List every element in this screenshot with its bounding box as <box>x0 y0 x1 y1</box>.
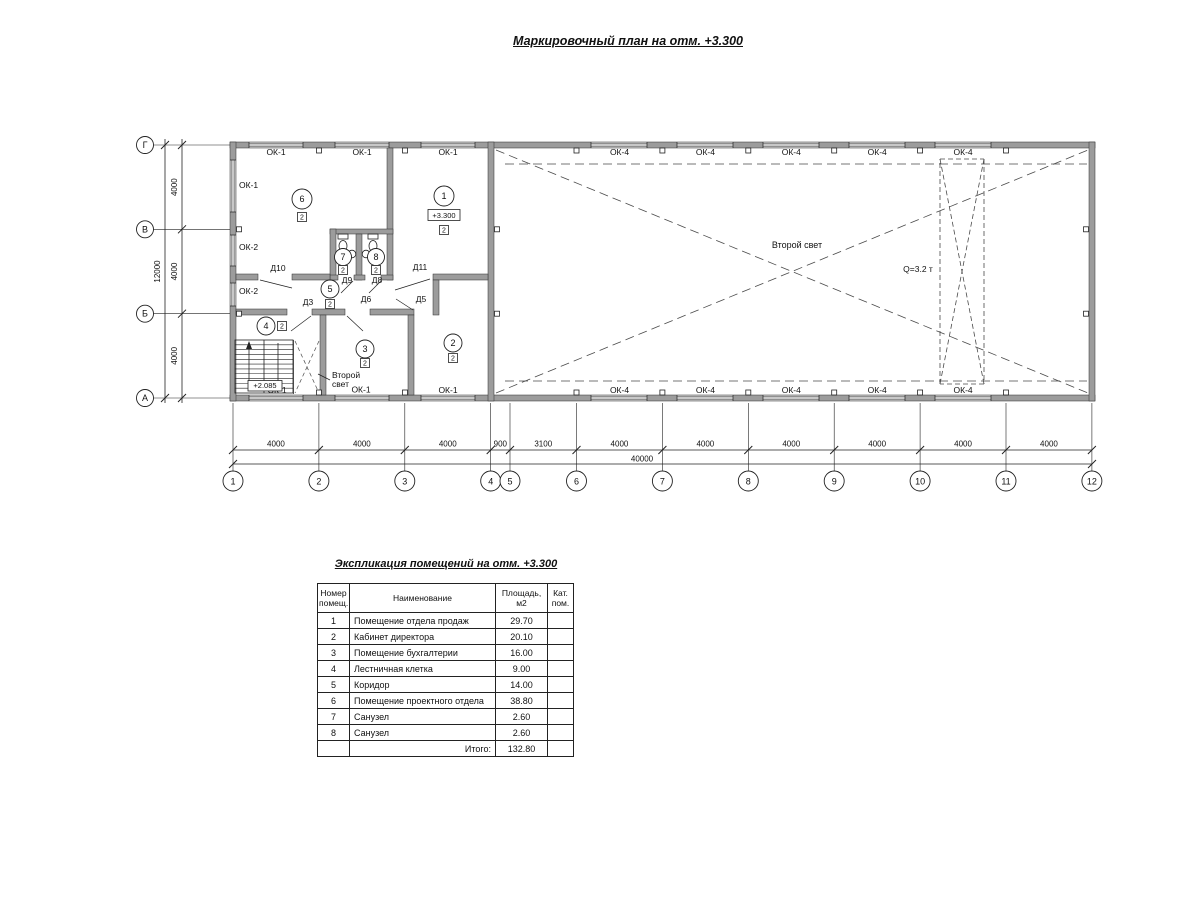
window-label: ОК-2 <box>239 286 258 296</box>
column-number: 10 <box>915 477 925 487</box>
window-label: ОК-4 <box>610 385 629 395</box>
window-opening <box>591 396 647 401</box>
cell-area: 14.00 <box>496 677 548 693</box>
row-letter: Г <box>143 140 148 150</box>
dimension-text: 4000 <box>170 346 179 364</box>
door-swing <box>396 299 413 310</box>
window-label: ОК-4 <box>782 385 801 395</box>
window-opening <box>421 396 475 401</box>
door-label: Д3 <box>303 297 314 307</box>
wall-tick <box>746 148 751 153</box>
header-room-number: Номер помещ. <box>318 584 350 613</box>
dimension-text: 4000 <box>170 178 179 196</box>
floor-plan-drawing: Д10Д9Д8Д11Д3Д6Д5ОК-1ОК-1ОК-1ОК-4ОК-4ОК-4… <box>0 0 1200 545</box>
window-opening <box>335 396 389 401</box>
category-value: 2 <box>374 268 378 275</box>
row-letter: Б <box>142 309 148 319</box>
wall-segment <box>356 234 362 280</box>
wall-segment <box>236 309 287 315</box>
window-label: ОК-1 <box>438 385 457 395</box>
door-swing <box>291 316 311 331</box>
wall-tick <box>317 390 322 395</box>
wall-tick <box>1084 311 1089 316</box>
cell-name: Санузел <box>350 709 496 725</box>
cell-number: 3 <box>318 645 350 661</box>
wall-segment <box>408 315 414 395</box>
dimension-text: 4000 <box>170 262 179 280</box>
wall-tick <box>1084 227 1089 232</box>
second-light-label: Второй свет <box>772 240 822 250</box>
wall-tick <box>746 390 751 395</box>
cell-category <box>548 661 574 677</box>
cell-name: Помещение проектного отдела <box>350 693 496 709</box>
window-label: ОК-4 <box>954 147 973 157</box>
window-label: ОК-4 <box>954 385 973 395</box>
cell-name: Лестничная клетка <box>350 661 496 677</box>
cell-area: 29.70 <box>496 613 548 629</box>
wall-segment <box>354 275 365 280</box>
cell-category <box>548 613 574 629</box>
window-opening <box>231 235 236 266</box>
window-opening <box>849 396 905 401</box>
wall-segment <box>312 309 345 315</box>
cell-category <box>548 725 574 741</box>
wall-tick <box>317 148 322 153</box>
column-number: 3 <box>402 477 407 487</box>
room-number: 2 <box>450 338 455 348</box>
category-value: 2 <box>300 215 304 222</box>
column-number: 9 <box>832 477 837 487</box>
column-number: 5 <box>507 477 512 487</box>
table-row: 6Помещение проектного отдела38.80 <box>318 693 574 709</box>
room-number: 1 <box>441 191 446 201</box>
dimension-total-text: 12000 <box>153 260 162 283</box>
drawing-sheet: Маркировочный план на отм. +3.300 Д10Д9Д… <box>0 0 1200 900</box>
cell-category <box>548 709 574 725</box>
toilet-tank <box>338 234 348 239</box>
total-value: 132.80 <box>496 741 548 757</box>
window-opening <box>231 160 236 212</box>
cell-category <box>548 677 574 693</box>
column-number: 2 <box>316 477 321 487</box>
category-value: 2 <box>363 361 367 368</box>
table-row: 4Лестничная клетка9.00 <box>318 661 574 677</box>
cell-area: 20.10 <box>496 629 548 645</box>
dimension-text: 4000 <box>353 440 371 449</box>
wall-tick <box>918 148 923 153</box>
cell-number: 7 <box>318 709 350 725</box>
dimension-text: 4000 <box>1040 440 1058 449</box>
cell-area: 2.60 <box>496 709 548 725</box>
window-label: ОК-4 <box>696 385 715 395</box>
wall-segment <box>330 229 393 234</box>
door-swing <box>260 280 292 288</box>
dimension-text: 4000 <box>696 440 714 449</box>
cell-number: 6 <box>318 693 350 709</box>
window-label: ОК-1 <box>239 180 258 190</box>
cell-number: 1 <box>318 613 350 629</box>
cell-category <box>548 629 574 645</box>
header-room-area: Площадь, м2 <box>496 584 548 613</box>
wall-segment <box>387 148 393 280</box>
dimension-total-text: 40000 <box>631 455 654 464</box>
wall-segment <box>320 315 326 395</box>
explication-section: Экспликация помещений на отм. +3.300 Ном… <box>317 558 575 757</box>
table-row: 8Санузел2.60 <box>318 725 574 741</box>
wall-tick <box>1004 148 1009 153</box>
category-value: 2 <box>328 302 332 309</box>
cell-area: 16.00 <box>496 645 548 661</box>
dimension-text: 4000 <box>782 440 800 449</box>
window-label: ОК-4 <box>696 147 715 157</box>
cell-category <box>548 645 574 661</box>
cell-area: 2.60 <box>496 725 548 741</box>
toilet-tank <box>368 234 378 239</box>
column-number: 4 <box>488 477 493 487</box>
wall-tick <box>574 390 579 395</box>
table-total-row: Итого:132.80 <box>318 741 574 757</box>
window-opening <box>231 283 236 306</box>
room-number: 7 <box>340 252 345 262</box>
table-row: 7Санузел2.60 <box>318 709 574 725</box>
wall-tick <box>403 390 408 395</box>
window-opening <box>935 396 991 401</box>
column-number: 11 <box>1001 477 1010 487</box>
explication-title: Экспликация помещений на отм. +3.300 <box>317 558 575 570</box>
column-number: 8 <box>746 477 751 487</box>
door-label: Д5 <box>416 294 427 304</box>
header-room-category: Кат. пом. <box>548 584 574 613</box>
wall-tick <box>403 148 408 153</box>
cell-number: 2 <box>318 629 350 645</box>
table-header-row: Номер помещ. Наименование Площадь, м2 Ка… <box>318 584 574 613</box>
door-label: Д11 <box>413 262 428 272</box>
door-label: Д6 <box>361 294 372 304</box>
elevation-value: +3.300 <box>432 211 455 220</box>
room-number: 4 <box>263 321 268 331</box>
dimension-text: 4000 <box>611 440 629 449</box>
table-row: 2Кабинет директора20.10 <box>318 629 574 645</box>
column-number: 6 <box>574 477 579 487</box>
window-label: ОК-4 <box>868 385 887 395</box>
room-number: 3 <box>362 344 367 354</box>
wall-segment <box>433 274 488 280</box>
wall-tick <box>832 390 837 395</box>
cell-area: 38.80 <box>496 693 548 709</box>
explication-table: Номер помещ. Наименование Площадь, м2 Ка… <box>317 583 574 757</box>
dimension-text: 4000 <box>267 440 285 449</box>
cell-number: 5 <box>318 677 350 693</box>
room-number: 5 <box>327 284 332 294</box>
column-number: 7 <box>660 477 665 487</box>
table-row: 1Помещение отдела продаж29.70 <box>318 613 574 629</box>
window-label: ОК-4 <box>610 147 629 157</box>
wall-segment <box>330 275 338 280</box>
cell-area: 9.00 <box>496 661 548 677</box>
room-number: 6 <box>299 194 304 204</box>
category-value: 2 <box>341 268 345 275</box>
window-label: ОК-4 <box>868 147 887 157</box>
window-label: ОК-4 <box>782 147 801 157</box>
window-opening <box>677 396 733 401</box>
table-row: 3Помещение бухгалтерии16.00 <box>318 645 574 661</box>
cell-number <box>318 741 350 757</box>
column-number: 1 <box>230 477 235 487</box>
category-value: 2 <box>280 324 284 331</box>
column-number: 12 <box>1087 477 1097 487</box>
wall-tick <box>495 227 500 232</box>
cell-category <box>548 741 574 757</box>
elevation-value: +2.085 <box>253 381 276 390</box>
wall-tick <box>832 148 837 153</box>
window-label: ОК-1 <box>438 147 457 157</box>
wall-tick <box>660 148 665 153</box>
cell-number: 4 <box>318 661 350 677</box>
window-label: ОК-1 <box>352 147 371 157</box>
wall-segment <box>381 275 393 280</box>
total-label: Итого: <box>350 741 496 757</box>
window-label: ОК-2 <box>239 242 258 252</box>
door-label: Д8 <box>372 275 383 285</box>
wall-tick <box>574 148 579 153</box>
wall-segment <box>292 274 330 280</box>
door-swing <box>395 279 430 290</box>
door-label: Д9 <box>342 275 353 285</box>
wall-tick <box>1004 390 1009 395</box>
wall-segment <box>433 280 439 315</box>
wall-segment <box>488 142 494 401</box>
cell-name: Коридор <box>350 677 496 693</box>
row-letter: В <box>142 224 148 234</box>
cell-name: Помещение бухгалтерии <box>350 645 496 661</box>
cell-name: Кабинет директора <box>350 629 496 645</box>
wall-tick <box>237 227 242 232</box>
wall-tick <box>237 311 242 316</box>
category-value: 2 <box>451 356 455 363</box>
category-value: 2 <box>442 228 446 235</box>
wall-segment <box>1089 142 1095 401</box>
crane-capacity-label: Q=3.2 т <box>903 264 933 274</box>
window-opening <box>249 396 303 401</box>
door-swing <box>347 316 363 331</box>
wall-segment <box>236 274 258 280</box>
wall-tick <box>495 311 500 316</box>
dimension-text: 900 <box>494 440 508 449</box>
wall-segment <box>370 309 414 315</box>
dimension-text: 4000 <box>868 440 886 449</box>
dimension-text: 4000 <box>439 440 457 449</box>
window-opening <box>763 396 819 401</box>
dimension-text: 3100 <box>534 440 552 449</box>
window-label: ОК-1 <box>266 147 285 157</box>
cell-name: Помещение отдела продаж <box>350 613 496 629</box>
second-light-stair-label: свет <box>332 379 349 389</box>
wall-tick <box>660 390 665 395</box>
cell-number: 8 <box>318 725 350 741</box>
wall-tick <box>918 390 923 395</box>
room-number: 8 <box>373 252 378 262</box>
cell-category <box>548 693 574 709</box>
row-letter: А <box>142 393 148 403</box>
dimension-text: 4000 <box>954 440 972 449</box>
cell-name: Санузел <box>350 725 496 741</box>
table-row: 5Коридор14.00 <box>318 677 574 693</box>
header-room-name: Наименование <box>350 584 496 613</box>
door-label: Д10 <box>270 263 285 273</box>
window-label: ОК-1 <box>351 385 370 395</box>
